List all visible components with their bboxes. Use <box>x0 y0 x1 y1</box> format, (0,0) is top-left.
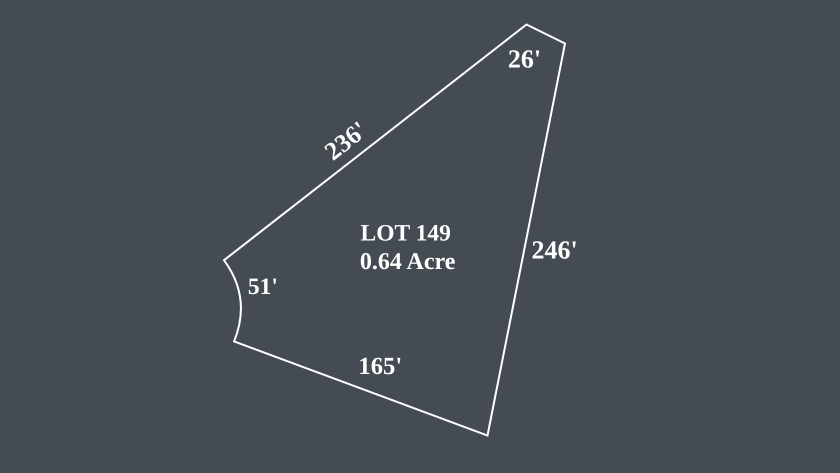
svg-text:0.64 Acre: 0.64 Acre <box>360 249 456 275</box>
svg-text:236': 236' <box>319 115 373 166</box>
svg-text:246': 246' <box>531 236 577 265</box>
svg-text:26': 26' <box>508 44 541 73</box>
svg-text:51': 51' <box>248 274 278 300</box>
svg-text:165': 165' <box>358 353 402 380</box>
svg-text:LOT 149: LOT 149 <box>361 221 451 247</box>
